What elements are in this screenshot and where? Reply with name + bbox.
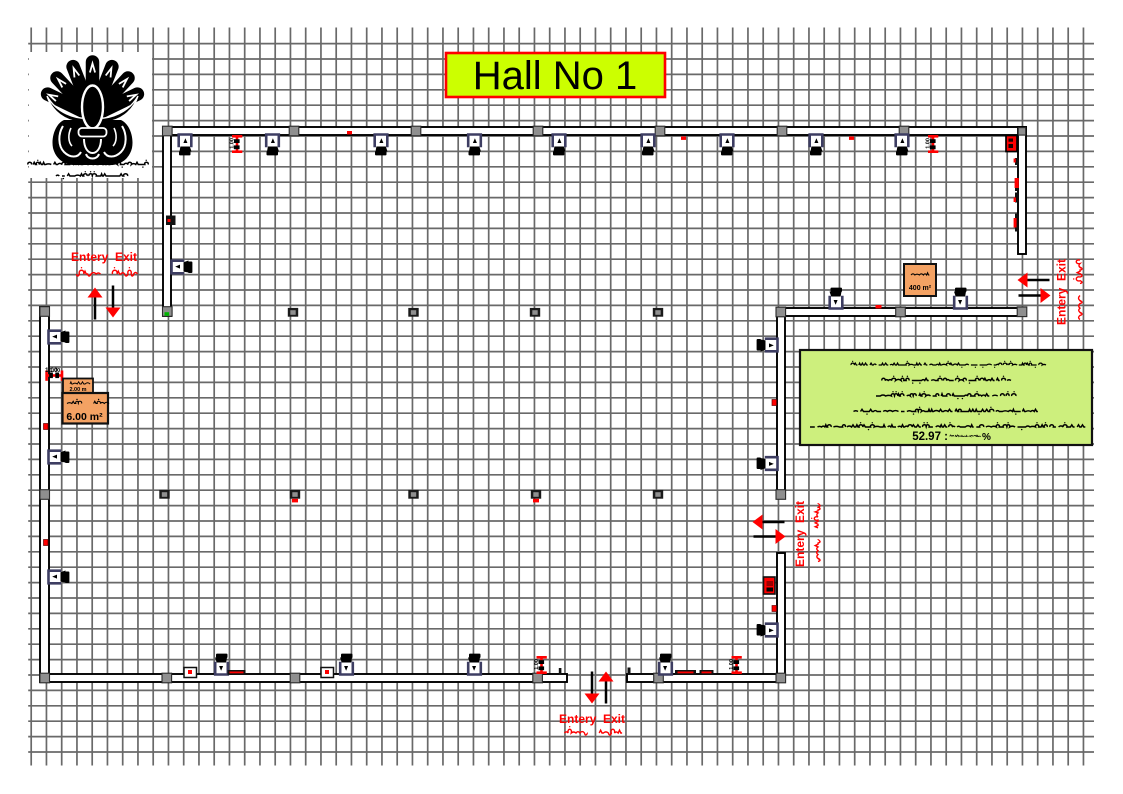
svg-text:Entery Exit: Entery Exit xyxy=(793,501,807,567)
svg-text:6.00 m²: 6.00 m² xyxy=(66,411,103,423)
svg-text:1.00: 1.00 xyxy=(45,367,58,374)
svg-text:Entery Exit: Entery Exit xyxy=(1055,259,1069,325)
svg-text:Hall No 1: Hall No 1 xyxy=(473,54,638,98)
svg-text:%: % xyxy=(982,432,991,443)
svg-text:Entery Exit: Entery Exit xyxy=(559,712,625,726)
svg-text:Entery Exit: Entery Exit xyxy=(71,250,137,264)
svg-text:52.97 :: 52.97 : xyxy=(912,431,948,443)
svg-text:400 m²: 400 m² xyxy=(909,285,932,292)
